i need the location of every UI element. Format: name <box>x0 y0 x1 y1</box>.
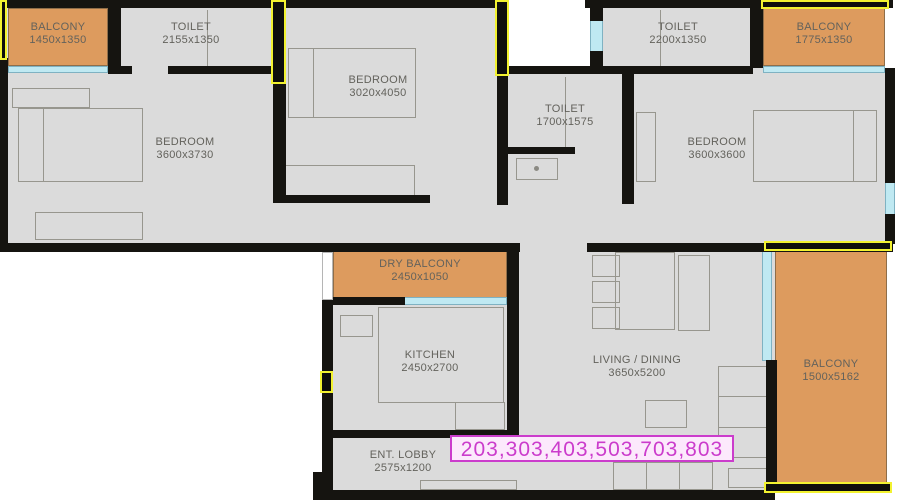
room-name: TOILET <box>658 21 698 33</box>
room-label-bedroom-left: BEDROOM 3600x3730 <box>115 136 255 162</box>
room-label-bedroom-top: BEDROOM 3020x4050 <box>308 74 448 100</box>
room-name: BEDROOM <box>156 136 215 148</box>
window-marker <box>885 181 895 215</box>
stove <box>455 402 505 430</box>
window-marker <box>403 297 507 305</box>
lobby-mat <box>420 480 517 490</box>
wall-segment <box>590 51 603 67</box>
outside-strip-balcony-right <box>887 245 893 490</box>
room-name: BALCONY <box>797 21 852 33</box>
wall-segment <box>0 0 497 8</box>
room-name: BALCONY <box>31 21 86 33</box>
room-dims: 1450x1350 <box>29 34 86 46</box>
wall-segment <box>750 8 763 68</box>
wall-segment <box>507 245 519 438</box>
room-name: LIVING / DINING <box>593 354 681 366</box>
door-marker <box>764 241 892 251</box>
room-label-kitchen: KITCHEN 2450x2700 <box>360 349 500 375</box>
wall-segment <box>497 72 508 205</box>
room-name: TOILET <box>171 21 211 33</box>
wall-segment <box>333 297 405 305</box>
dining-table <box>615 252 675 330</box>
wardrobe-top <box>285 165 415 198</box>
door-marker <box>764 482 892 493</box>
bed-right-pillow <box>853 110 877 182</box>
outside-strip-top-right <box>885 8 893 68</box>
dining-bench <box>678 255 710 331</box>
window-marker <box>8 66 108 73</box>
wall-segment <box>273 195 430 203</box>
side-table <box>728 468 768 488</box>
dining-chair <box>592 307 620 329</box>
room-name: BALCONY <box>804 358 859 370</box>
room-dims: 3020x4050 <box>349 87 406 99</box>
room-label-bedroom-right: BEDROOM 3600x3600 <box>647 136 787 162</box>
shelf <box>12 88 90 108</box>
window-marker <box>763 66 885 73</box>
wardrobe-left <box>35 212 143 240</box>
window-marker <box>590 20 603 52</box>
room-label-balcony-top-right: BALCONY 1775x1350 <box>763 21 885 47</box>
cabinet-divider-line <box>718 427 768 428</box>
wall-segment <box>590 0 603 21</box>
wall-segment <box>590 66 753 74</box>
door-marker <box>761 0 889 9</box>
room-name: TOILET <box>545 103 585 115</box>
room-dims: 3600x3730 <box>156 149 213 161</box>
dining-chair <box>592 255 620 277</box>
room-label-living-dining: LIVING / DINING 3650x5200 <box>567 354 707 380</box>
room-dims: 1775x1350 <box>795 34 852 46</box>
door-marker <box>495 0 509 76</box>
room-dims: 2575x1200 <box>374 462 431 474</box>
room-dims: 2155x1350 <box>162 34 219 46</box>
service-gap <box>322 252 333 300</box>
coffee-table <box>645 400 687 428</box>
door-marker <box>320 371 333 393</box>
wall-segment <box>0 243 520 252</box>
room-dims: 3600x3600 <box>688 149 745 161</box>
wall-segment <box>313 490 775 500</box>
wall-segment <box>885 68 895 183</box>
wall-segment <box>0 58 8 252</box>
sofa-cushion-line <box>646 462 647 490</box>
wall-segment <box>497 66 590 74</box>
wall-segment <box>622 68 634 204</box>
wall-segment <box>322 300 333 500</box>
room-label-toilet-top-right: TOILET 2200x1350 <box>613 21 743 47</box>
duct-shaft <box>507 8 590 66</box>
room-name: BEDROOM <box>688 136 747 148</box>
sofa <box>613 462 713 490</box>
room-dims: 1700x1575 <box>536 116 593 128</box>
room-label-toilet-middle: TOILET 1700x1575 <box>505 103 625 129</box>
room-label-balcony-top-left: BALCONY 1450x1350 <box>8 21 108 47</box>
room-dims: 1500x5162 <box>802 371 859 383</box>
room-dims: 2450x1050 <box>391 271 448 283</box>
door-marker <box>0 0 7 60</box>
room-dims: 2200x1350 <box>649 34 706 46</box>
basin-drain-dot <box>534 166 539 171</box>
wall-segment <box>273 84 286 197</box>
room-label-dry-balcony: DRY BALCONY 2450x1050 <box>350 258 490 284</box>
room-dims: 3650x5200 <box>608 367 665 379</box>
window-marker <box>762 250 772 361</box>
floor-plan: BALCONY 1450x1350 TOILET 2155x1350 BEDRO… <box>0 0 900 500</box>
room-dims: 2450x2700 <box>401 362 458 374</box>
wall-segment <box>885 214 895 244</box>
unit-numbers-badge: 203,303,403,503,703,803 <box>450 435 734 462</box>
room-label-toilet-top-left: TOILET 2155x1350 <box>118 21 264 47</box>
kitchen-sink <box>340 315 373 337</box>
dining-chair <box>592 281 620 303</box>
room-name: ENT. LOBBY <box>370 449 437 461</box>
wall-segment <box>497 147 575 154</box>
door-marker <box>271 0 286 84</box>
room-name: KITCHEN <box>405 349 455 361</box>
sofa-cushion-line <box>679 462 680 490</box>
wall-segment <box>168 66 275 74</box>
bed-left-pillow <box>18 108 44 182</box>
room-label-balcony-right: BALCONY 1500x5162 <box>775 358 887 384</box>
room-name: DRY BALCONY <box>379 258 461 270</box>
cabinet-divider-line <box>718 396 768 397</box>
room-name: BEDROOM <box>349 74 408 86</box>
